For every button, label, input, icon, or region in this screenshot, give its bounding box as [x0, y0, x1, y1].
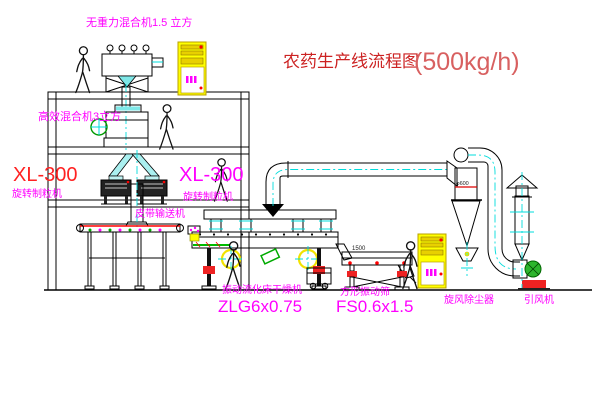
label-sieve-model: FS0.6x1.5 — [336, 297, 414, 316]
indicator-light — [200, 87, 203, 90]
exhaust-duct — [262, 161, 449, 217]
process-flow-diagram: 无重力混合机1.5 立方 农药生产线流程图 (500kg/h) 高效混合机3立方… — [0, 0, 600, 403]
indicator-light — [199, 45, 202, 48]
label-cyclone: 旋风除尘器 — [444, 293, 494, 306]
gravity-free-mixer — [102, 45, 163, 150]
person-figure — [160, 105, 173, 149]
label-granulator-left-model: XL-300 — [13, 164, 78, 186]
belt-conveyor — [77, 224, 184, 289]
indicator-light — [439, 238, 442, 241]
label-high-efficiency-mixer: 高效混合机3立方 — [38, 109, 121, 123]
dryer-feed-spout — [188, 226, 200, 241]
control-cabinet-right — [418, 234, 446, 288]
label-fan: 引风机 — [524, 293, 554, 306]
label-dryer-name: 振动流化床干燥机 — [222, 283, 302, 296]
label-dryer-model: ZLG6x0.75 — [218, 297, 302, 316]
cad-drawing: 无重力混合机1.5 立方 农药生产线流程图 (500kg/h) 高效混合机3立方… — [0, 0, 600, 403]
dimension-sieve: 1500 — [352, 246, 366, 252]
dimension-cyclone: φ600 — [456, 181, 469, 187]
person-figure — [403, 242, 417, 289]
label-granulator-center-model: XL-300 — [179, 164, 244, 186]
outlet-elbow — [454, 148, 468, 162]
panel-marking — [426, 269, 429, 276]
induced-draft-fan — [513, 260, 550, 290]
fan-base — [522, 280, 546, 288]
indicator-light — [440, 273, 443, 276]
fluid-bed-dryer — [188, 210, 352, 289]
panel-marking — [186, 76, 189, 83]
control-cabinet-top — [178, 42, 206, 95]
panel-marking — [430, 269, 433, 276]
person-figure — [76, 47, 90, 93]
y-splitter-chute — [109, 154, 159, 176]
page-title-capacity: (500kg/h) — [414, 48, 520, 76]
vibration-motor — [261, 249, 279, 264]
label-belt-conveyor: 皮带输送机 — [135, 207, 185, 220]
discharge-cone — [118, 76, 136, 87]
panel-marking — [434, 269, 437, 276]
label-granulator-center-name: 旋转制粒机 — [183, 190, 233, 203]
panel-marking — [190, 76, 193, 83]
label-granulator-left-name: 旋转制粒机 — [12, 187, 62, 200]
cyclone-dust-collector — [447, 148, 520, 276]
panel-marking — [194, 76, 197, 83]
label-gravity-free-mixer: 无重力混合机1.5 立方 — [86, 15, 192, 29]
page-title: 农药生产线流程图 — [283, 52, 419, 71]
